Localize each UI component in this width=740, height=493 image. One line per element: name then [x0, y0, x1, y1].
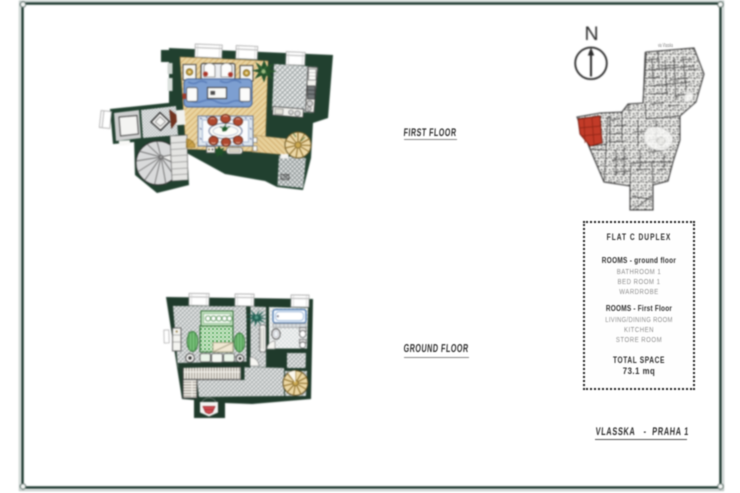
svg-text:N: N: [585, 23, 599, 45]
